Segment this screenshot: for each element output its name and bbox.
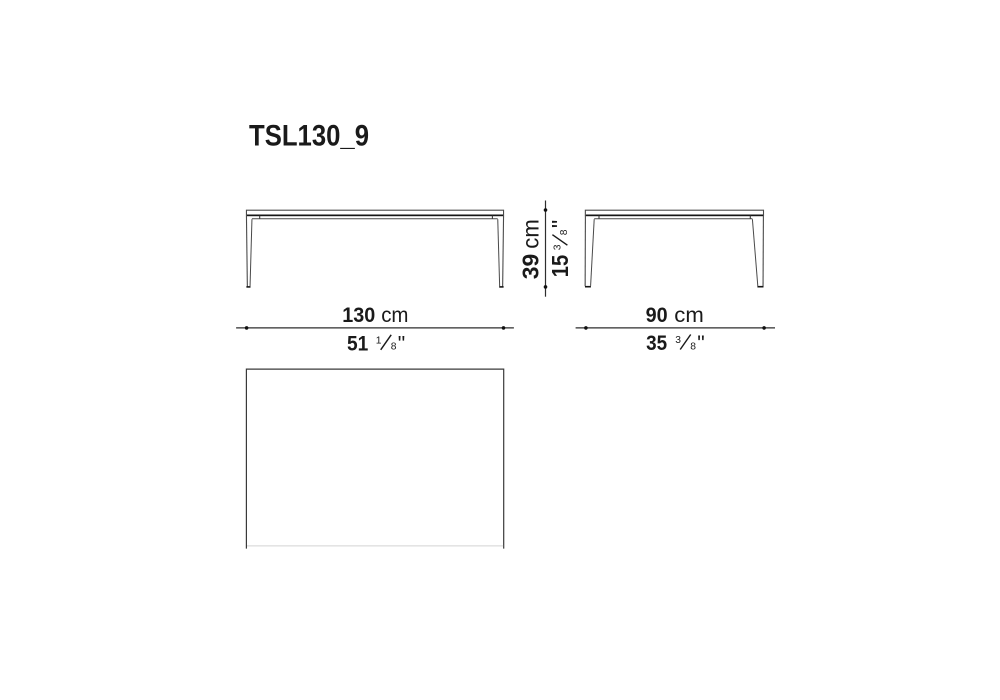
svg-text:51: 51 xyxy=(347,332,369,355)
svg-text:1: 1 xyxy=(376,335,382,346)
svg-text:cm: cm xyxy=(381,304,408,327)
svg-text:3: 3 xyxy=(675,335,681,346)
svg-text:": " xyxy=(697,332,704,355)
svg-text:35: 35 xyxy=(646,332,667,355)
svg-text:8: 8 xyxy=(559,229,570,235)
svg-text:3: 3 xyxy=(553,244,564,250)
svg-text:15: 15 xyxy=(547,255,573,277)
svg-text:": " xyxy=(398,332,405,355)
svg-text:39: 39 xyxy=(518,254,544,280)
svg-text:90: 90 xyxy=(646,304,668,327)
svg-text:cm: cm xyxy=(674,304,704,327)
svg-text:": " xyxy=(547,220,573,228)
svg-text:cm: cm xyxy=(518,219,544,249)
svg-text:130: 130 xyxy=(342,304,375,327)
svg-text:8: 8 xyxy=(391,342,397,353)
svg-text:8: 8 xyxy=(690,341,696,352)
svg-text:TSL130_9: TSL130_9 xyxy=(249,119,369,152)
